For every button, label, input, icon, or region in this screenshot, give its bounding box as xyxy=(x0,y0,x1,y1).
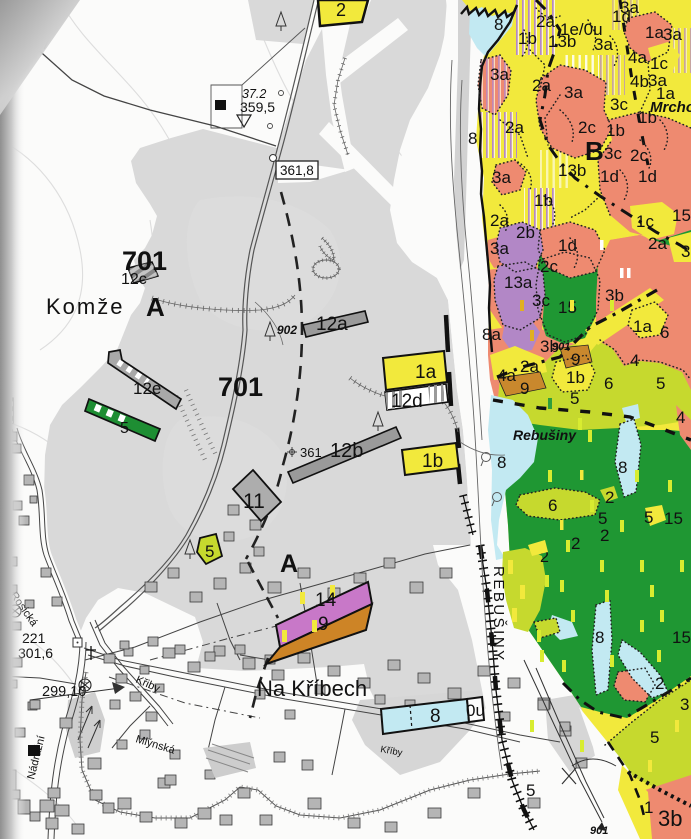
svg-text:8: 8 xyxy=(595,628,604,647)
svg-text:2c: 2c xyxy=(540,257,558,276)
svg-text:9: 9 xyxy=(318,614,329,635)
svg-text:3c: 3c xyxy=(610,95,628,114)
svg-text:2b: 2b xyxy=(516,223,535,242)
svg-text:15: 15 xyxy=(664,509,683,528)
svg-text:361,8: 361,8 xyxy=(280,163,314,178)
svg-text:5: 5 xyxy=(656,374,665,393)
svg-text:1d: 1d xyxy=(558,236,577,255)
svg-text:2a: 2a xyxy=(520,357,539,376)
svg-text:1: 1 xyxy=(644,798,653,817)
svg-text:2: 2 xyxy=(336,0,346,20)
svg-text:A: A xyxy=(280,550,298,578)
svg-text:3c: 3c xyxy=(604,144,622,163)
svg-text:3c: 3c xyxy=(532,291,550,310)
svg-text:2: 2 xyxy=(605,488,614,507)
svg-text:8: 8 xyxy=(430,706,441,727)
svg-text:2a: 2a xyxy=(536,12,555,31)
svg-text:6: 6 xyxy=(660,323,669,342)
svg-text:14: 14 xyxy=(315,590,337,611)
svg-text:2a: 2a xyxy=(532,76,551,95)
svg-text:5: 5 xyxy=(205,542,214,561)
svg-text:4: 4 xyxy=(630,351,639,370)
svg-text:8: 8 xyxy=(618,458,627,477)
svg-text:5: 5 xyxy=(526,781,535,800)
svg-text:2a: 2a xyxy=(505,118,524,137)
svg-text:5: 5 xyxy=(650,728,659,747)
svg-text:3a: 3a xyxy=(594,35,613,54)
svg-text:3b: 3b xyxy=(681,242,691,261)
svg-text:1d: 1d xyxy=(612,7,631,26)
svg-text:2: 2 xyxy=(600,526,609,545)
svg-text:3a: 3a xyxy=(492,168,511,187)
svg-text:3b: 3b xyxy=(658,806,682,831)
svg-text:13b: 13b xyxy=(548,32,576,51)
svg-text:11: 11 xyxy=(243,490,265,513)
svg-text:359,5: 359,5 xyxy=(240,99,275,115)
svg-text:5: 5 xyxy=(644,508,653,527)
svg-text:4a: 4a xyxy=(628,48,647,67)
svg-text:3a: 3a xyxy=(490,239,509,258)
svg-text:Na Kříbech: Na Kříbech xyxy=(257,676,367,701)
svg-text:4a: 4a xyxy=(497,366,516,385)
svg-text:8a: 8a xyxy=(482,325,501,344)
svg-text:8: 8 xyxy=(468,129,477,148)
svg-text:3: 3 xyxy=(680,695,689,714)
svg-text:1b: 1b xyxy=(518,29,537,48)
svg-text:2c: 2c xyxy=(630,146,648,165)
svg-text:Mrchov: Mrchov xyxy=(650,99,691,116)
svg-text:9: 9 xyxy=(571,350,580,369)
svg-text:15: 15 xyxy=(672,628,691,647)
svg-text:8: 8 xyxy=(497,453,506,472)
svg-text:4b: 4b xyxy=(630,72,649,91)
svg-text:901: 901 xyxy=(552,341,570,353)
svg-text:2: 2 xyxy=(571,534,580,553)
svg-text:REBUŠINY: REBUŠINY xyxy=(490,566,507,663)
svg-text:3a: 3a xyxy=(663,25,682,44)
svg-text:5: 5 xyxy=(120,420,129,437)
svg-text:A: A xyxy=(146,292,165,322)
svg-text:3a: 3a xyxy=(490,65,509,84)
svg-text:2a: 2a xyxy=(490,211,509,230)
svg-text:3b: 3b xyxy=(605,286,624,305)
svg-text:1a: 1a xyxy=(633,317,652,336)
svg-text:1a: 1a xyxy=(645,23,664,42)
svg-text:12b: 12b xyxy=(330,440,363,462)
svg-text:15: 15 xyxy=(672,206,691,225)
svg-text:Rebušiny: Rebušiny xyxy=(513,427,577,443)
svg-text:0u: 0u xyxy=(466,701,485,720)
svg-text:3a: 3a xyxy=(564,83,583,102)
svg-text:B: B xyxy=(585,136,604,166)
svg-text:4: 4 xyxy=(676,408,685,427)
svg-text:1d: 1d xyxy=(600,167,619,186)
svg-text:12a: 12a xyxy=(316,314,348,335)
svg-text:13a: 13a xyxy=(504,273,533,292)
svg-text:1b: 1b xyxy=(566,368,585,387)
svg-text:701: 701 xyxy=(122,246,167,276)
svg-text:2: 2 xyxy=(655,674,664,693)
svg-text:1c: 1c xyxy=(636,212,654,231)
svg-text:361: 361 xyxy=(300,445,322,460)
svg-text:15: 15 xyxy=(558,298,577,317)
svg-text:12d: 12d xyxy=(391,391,423,412)
svg-text:12e: 12e xyxy=(133,379,161,398)
svg-text:2c: 2c xyxy=(578,118,596,137)
svg-text:1b: 1b xyxy=(606,121,625,140)
svg-text:5: 5 xyxy=(570,389,579,408)
svg-text:1b: 1b xyxy=(422,451,443,472)
svg-text:6: 6 xyxy=(604,374,613,393)
svg-text:6: 6 xyxy=(548,496,557,515)
svg-text:Komže: Komže xyxy=(46,294,124,319)
svg-text:13b: 13b xyxy=(558,161,586,180)
svg-text:8: 8 xyxy=(494,15,503,34)
svg-text:1b: 1b xyxy=(534,191,553,210)
svg-text:902: 902 xyxy=(277,323,297,337)
svg-text:1d: 1d xyxy=(638,167,657,186)
svg-text:701: 701 xyxy=(218,372,263,402)
svg-text:2a: 2a xyxy=(648,234,667,253)
svg-text:9: 9 xyxy=(520,379,529,398)
svg-text:1a: 1a xyxy=(415,362,437,383)
